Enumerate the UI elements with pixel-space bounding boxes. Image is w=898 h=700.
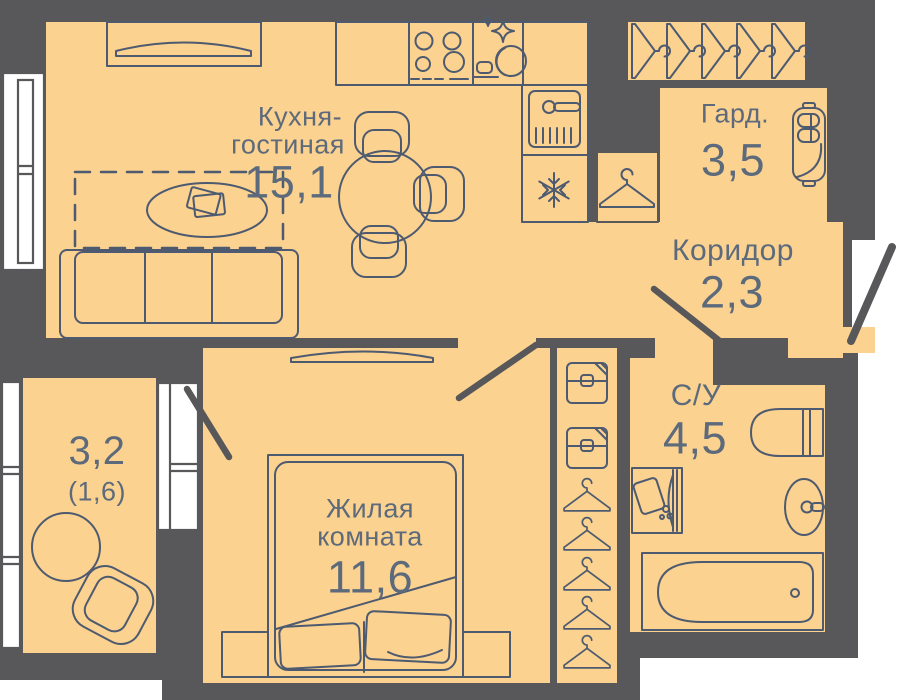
outside-area [0,680,162,700]
corridor-floor [588,222,843,338]
kitchen-living-floor [46,22,588,338]
entry-door-leaf [851,247,892,341]
bedroom-closet-floor [557,348,617,683]
living-room-window [3,73,44,270]
wardrobe-floor [660,88,827,240]
entry-closet-floor [597,152,658,222]
bathroom-floor [630,358,825,632]
entry-nook-floor [788,338,843,358]
floorplan-drawing [0,0,898,700]
floorplan: Кухня- гостиная 15,1 Гард. 3,5 Коридор 2… [0,0,898,700]
balcony-door [158,383,198,530]
balcony-glazing [2,382,20,648]
balcony-floor [23,378,156,653]
bedroom-doorway [458,336,536,350]
bathroom-doorway [655,336,713,360]
